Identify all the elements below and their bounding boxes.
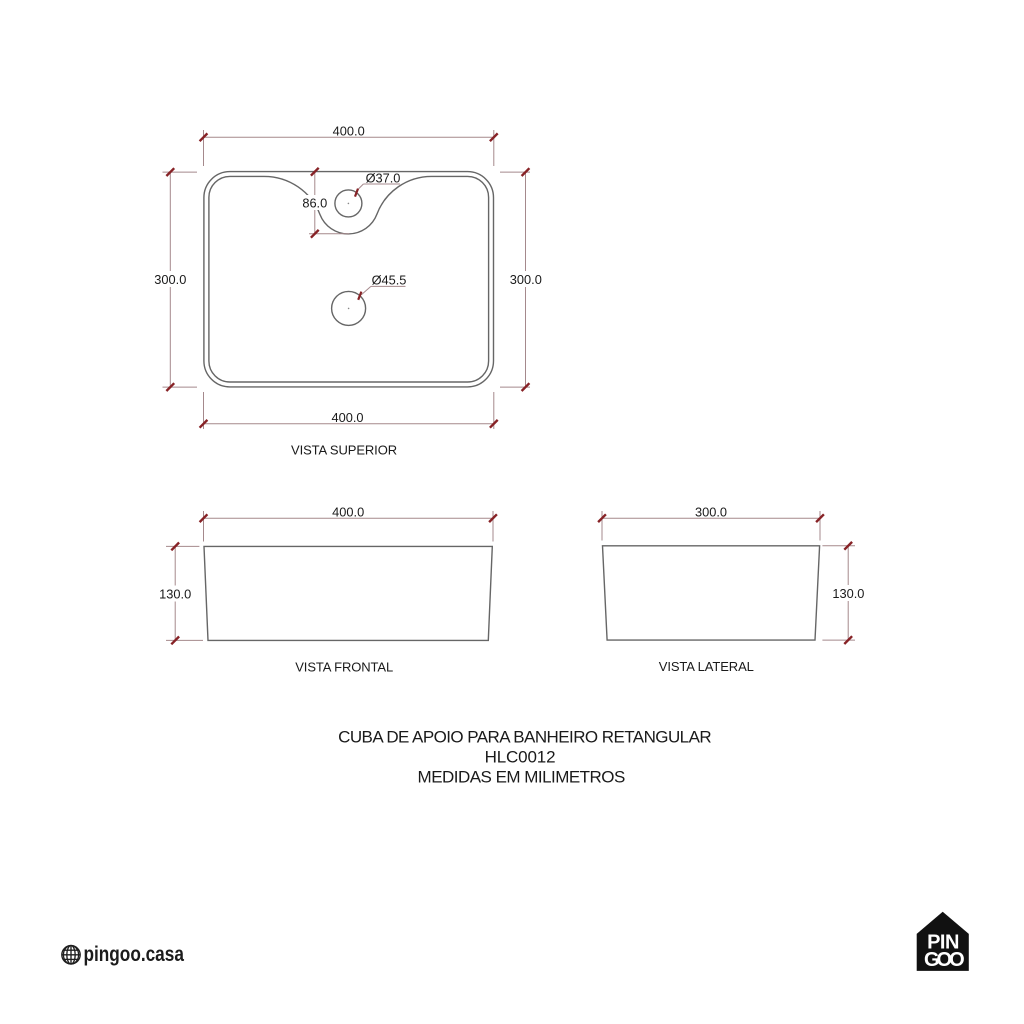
svg-text:pingoo.casa: pingoo.casa (84, 944, 185, 967)
svg-text:Ø37.0: Ø37.0 (366, 170, 401, 185)
svg-text:VISTA LATERAL: VISTA LATERAL (659, 659, 754, 674)
svg-text:VISTA FRONTAL: VISTA FRONTAL (295, 659, 393, 674)
svg-text:300.0: 300.0 (154, 272, 186, 287)
svg-text:300.0: 300.0 (695, 504, 727, 519)
svg-text:HLC0012: HLC0012 (485, 748, 556, 767)
svg-text:400.0: 400.0 (333, 124, 365, 139)
svg-text:300.0: 300.0 (510, 272, 542, 287)
svg-text:Ø45.5: Ø45.5 (372, 272, 407, 287)
svg-text:MEDIDAS EM MILIMETROS: MEDIDAS EM MILIMETROS (418, 767, 625, 786)
svg-text:400.0: 400.0 (331, 410, 363, 425)
svg-text:CUBA DE APOIO PARA BANHEIRO RE: CUBA DE APOIO PARA BANHEIRO RETANGULAR (338, 727, 711, 746)
svg-text:86.0: 86.0 (302, 195, 327, 210)
svg-text:GOO: GOO (924, 949, 964, 971)
svg-text:VISTA SUPERIOR: VISTA SUPERIOR (291, 443, 397, 458)
svg-text:130.0: 130.0 (832, 586, 864, 601)
svg-text:400.0: 400.0 (332, 504, 364, 519)
svg-text:130.0: 130.0 (159, 587, 191, 602)
